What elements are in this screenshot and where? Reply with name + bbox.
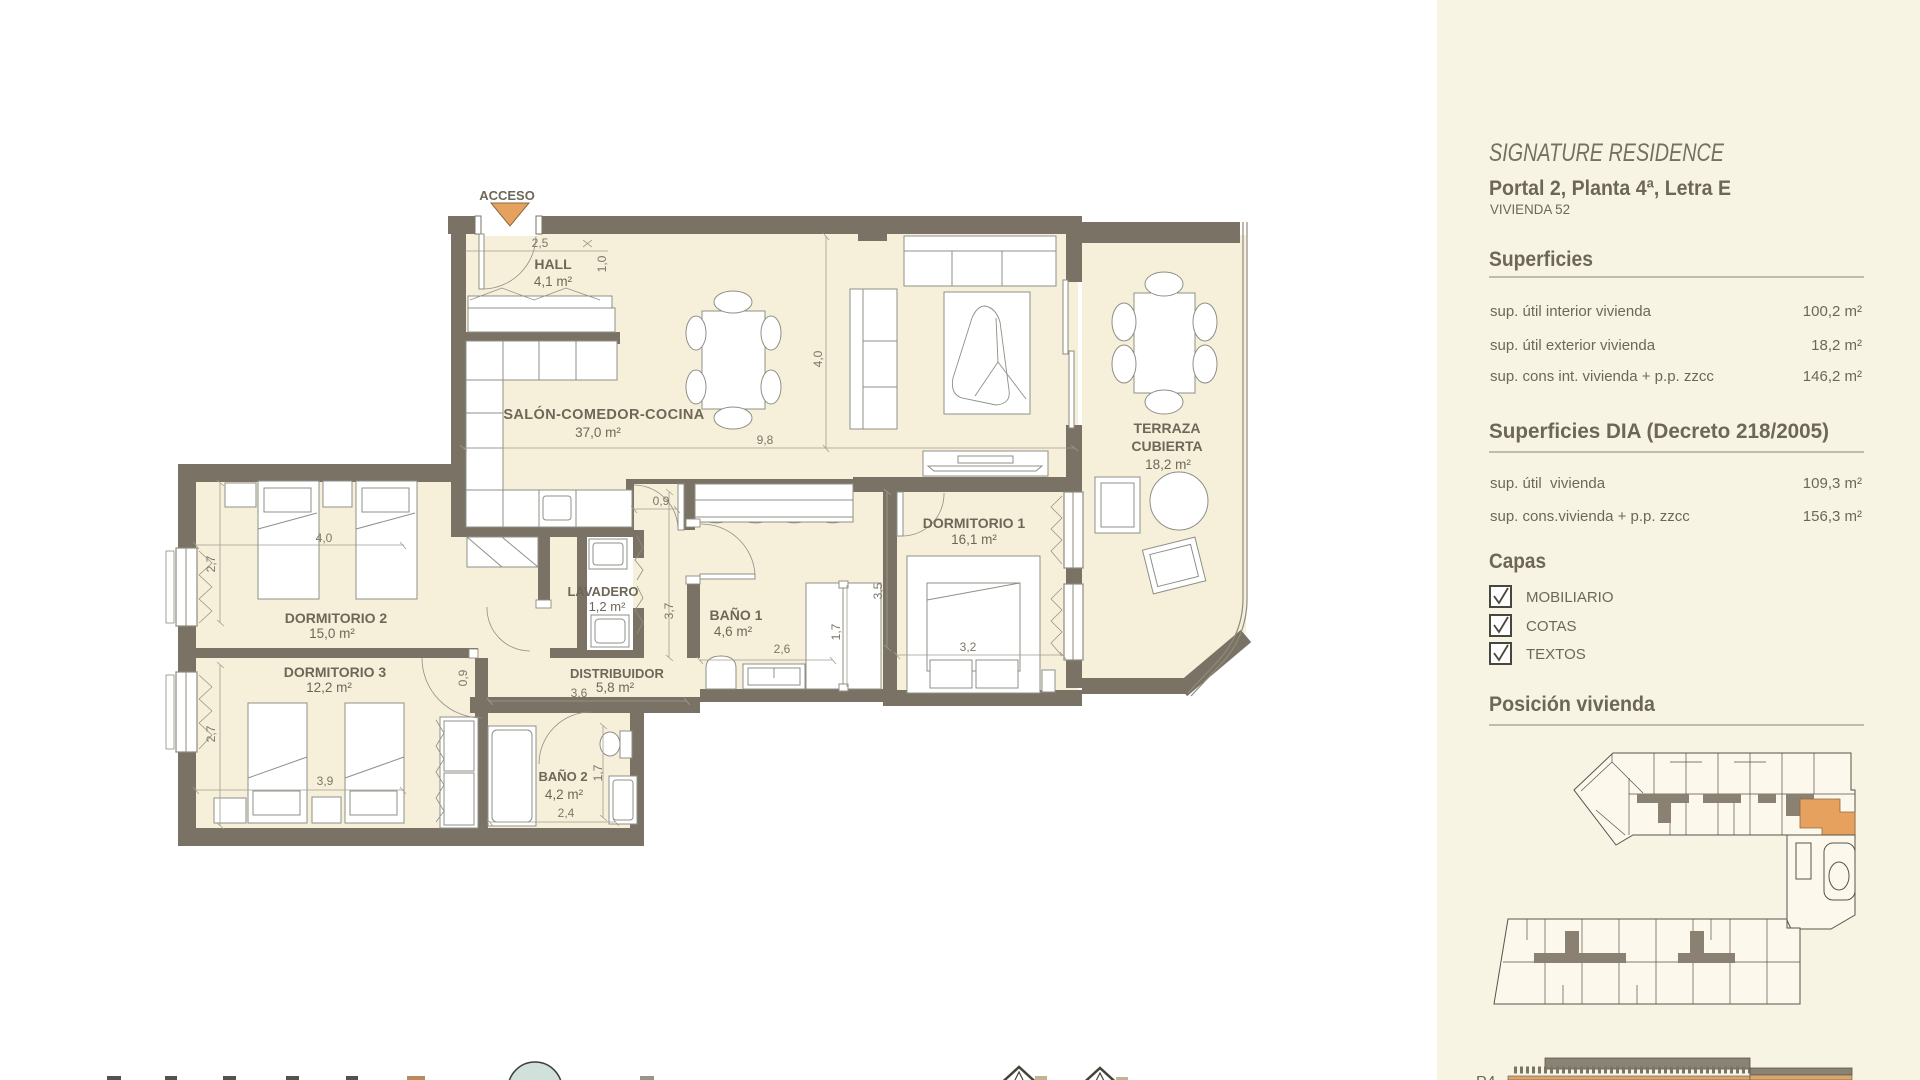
svg-text:sup. útil vivienda: sup. útil vivienda bbox=[1490, 475, 1606, 492]
svg-text:4,0: 4,0 bbox=[811, 350, 825, 367]
svg-text:1,2 m²: 1,2 m² bbox=[589, 599, 627, 614]
svg-text:0,9: 0,9 bbox=[456, 669, 470, 686]
svg-text:MOBILIARIO: MOBILIARIO bbox=[1526, 589, 1614, 606]
svg-text:TERRAZA: TERRAZA bbox=[1134, 420, 1201, 436]
svg-text:2,7: 2,7 bbox=[204, 555, 218, 572]
svg-text:1,7: 1,7 bbox=[829, 623, 843, 640]
svg-text:DISTRIBUIDOR: DISTRIBUIDOR bbox=[570, 666, 665, 681]
svg-text:4,1 m²: 4,1 m² bbox=[534, 274, 573, 289]
svg-text:3,7: 3,7 bbox=[662, 602, 676, 619]
svg-text:4,2 m²: 4,2 m² bbox=[545, 787, 584, 802]
svg-text:BAÑO 1: BAÑO 1 bbox=[710, 606, 763, 623]
svg-text:4,6 m²: 4,6 m² bbox=[714, 624, 753, 639]
svg-text:3,6: 3,6 bbox=[571, 686, 588, 700]
svg-text:Posición vivienda: Posición vivienda bbox=[1489, 693, 1655, 716]
svg-text:37,0 m²: 37,0 m² bbox=[575, 425, 621, 440]
svg-text:sup. útil exterior vivienda: sup. útil exterior vivienda bbox=[1490, 337, 1656, 354]
svg-text:15,0 m²: 15,0 m² bbox=[309, 626, 355, 641]
svg-text:HALL: HALL bbox=[534, 256, 572, 272]
svg-text:sup. cons.vivienda + p.p. zzcc: sup. cons.vivienda + p.p. zzcc bbox=[1490, 508, 1690, 525]
svg-text:2,7: 2,7 bbox=[204, 725, 218, 742]
svg-text:SIGNATURE RESIDENCE: SIGNATURE RESIDENCE bbox=[1489, 139, 1724, 167]
svg-text:3,5: 3,5 bbox=[871, 582, 885, 599]
svg-text:109,3 m²: 109,3 m² bbox=[1803, 475, 1862, 492]
svg-text:3,9: 3,9 bbox=[317, 774, 334, 788]
svg-text:156,3 m²: 156,3 m² bbox=[1803, 508, 1862, 525]
svg-text:18,2 m²: 18,2 m² bbox=[1145, 457, 1191, 472]
svg-text:9,8: 9,8 bbox=[757, 433, 774, 447]
svg-text:Superficies DIA (Decreto 218/2: Superficies DIA (Decreto 218/2005) bbox=[1489, 420, 1829, 443]
svg-text:2,4: 2,4 bbox=[558, 806, 575, 820]
svg-text:DORMITORIO 1: DORMITORIO 1 bbox=[923, 515, 1026, 531]
svg-text:DORMITORIO 3: DORMITORIO 3 bbox=[284, 664, 387, 680]
svg-text:2,6: 2,6 bbox=[774, 642, 791, 656]
svg-text:sup. cons int. vivienda + p.p.: sup. cons int. vivienda + p.p. zzcc bbox=[1490, 368, 1714, 385]
svg-text:146,2 m²: 146,2 m² bbox=[1803, 368, 1862, 385]
svg-text:0,9: 0,9 bbox=[653, 494, 670, 508]
svg-text:LAVADERO: LAVADERO bbox=[567, 584, 638, 599]
svg-text:5,8 m²: 5,8 m² bbox=[596, 680, 635, 695]
svg-text:Portal 2, Planta 4ª, Letra E: Portal 2, Planta 4ª, Letra E bbox=[1489, 177, 1731, 200]
svg-text:3,2: 3,2 bbox=[960, 640, 977, 654]
svg-text:18,2 m²: 18,2 m² bbox=[1811, 337, 1862, 354]
svg-text:SALÓN-COMEDOR-COCINA: SALÓN-COMEDOR-COCINA bbox=[503, 405, 704, 423]
svg-text:12,2 m²: 12,2 m² bbox=[306, 680, 352, 695]
svg-text:BAÑO 2: BAÑO 2 bbox=[538, 769, 587, 784]
svg-text:2,5: 2,5 bbox=[532, 236, 549, 250]
svg-text:ACCESO: ACCESO bbox=[479, 188, 535, 203]
svg-text:4,0: 4,0 bbox=[316, 531, 333, 545]
svg-text:16,1 m²: 16,1 m² bbox=[951, 532, 997, 547]
svg-text:1,0: 1,0 bbox=[595, 255, 609, 272]
svg-text:TEXTOS: TEXTOS bbox=[1526, 646, 1586, 663]
svg-text:sup. útil interior vivienda: sup. útil interior vivienda bbox=[1490, 303, 1652, 320]
svg-text:Superficies: Superficies bbox=[1489, 248, 1593, 271]
svg-text:100,2 m²: 100,2 m² bbox=[1803, 303, 1862, 320]
svg-text:COTAS: COTAS bbox=[1526, 618, 1577, 635]
svg-text:VIVIENDA 52: VIVIENDA 52 bbox=[1490, 201, 1570, 217]
svg-text:P4: P4 bbox=[1476, 1074, 1496, 1080]
svg-text:CUBIERTA: CUBIERTA bbox=[1131, 438, 1202, 454]
svg-text:1,7: 1,7 bbox=[591, 764, 605, 781]
svg-text:Capas: Capas bbox=[1489, 550, 1546, 573]
svg-text:DORMITORIO 2: DORMITORIO 2 bbox=[285, 610, 388, 626]
